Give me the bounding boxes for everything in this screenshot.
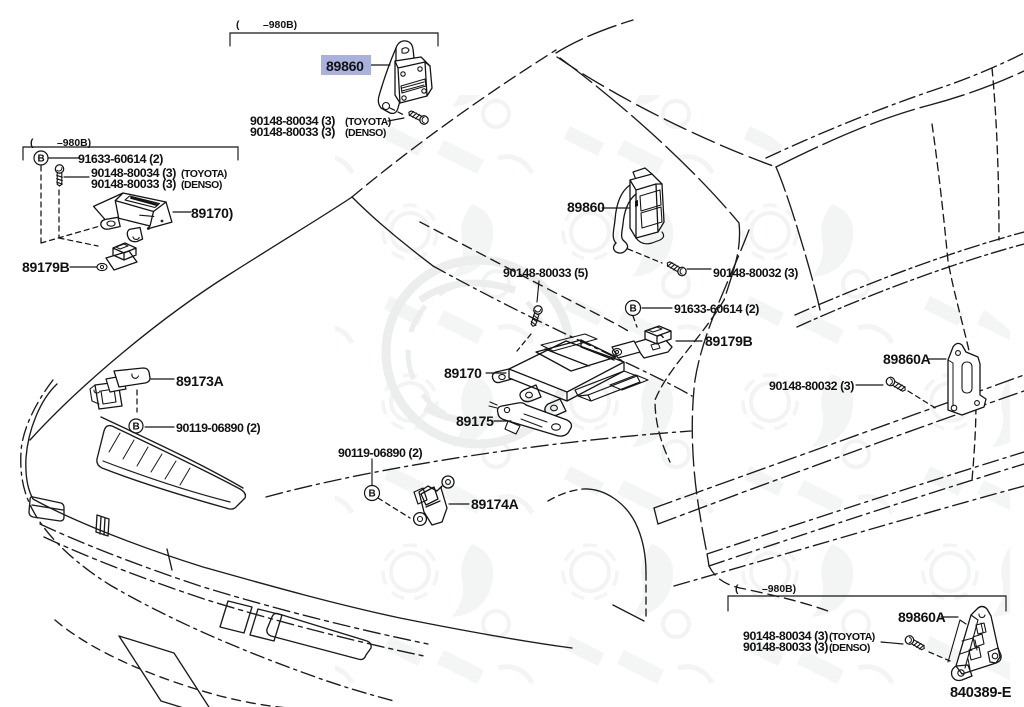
svg-text:(: ( xyxy=(30,138,34,149)
svg-text:(DENSO): (DENSO) xyxy=(181,179,222,191)
svg-text:89175: 89175 xyxy=(456,413,494,429)
svg-text:90148-80032 (3): 90148-80032 (3) xyxy=(713,266,798,280)
svg-text:90148-80033 (3): 90148-80033 (3) xyxy=(743,640,828,654)
svg-text:B: B xyxy=(133,422,140,433)
svg-text:B: B xyxy=(38,154,45,165)
svg-text:90148-80033 (3): 90148-80033 (3) xyxy=(91,177,176,191)
svg-text:–980B): –980B) xyxy=(57,138,91,149)
svg-text:89179B: 89179B xyxy=(22,259,70,275)
svg-text:B: B xyxy=(630,304,637,315)
svg-text:91633-60614 (2): 91633-60614 (2) xyxy=(674,302,759,316)
svg-text:89860: 89860 xyxy=(326,58,364,74)
svg-text:90119-06890 (2): 90119-06890 (2) xyxy=(176,421,261,435)
svg-text:89860A: 89860A xyxy=(898,609,946,625)
svg-text:89860: 89860 xyxy=(567,199,605,215)
svg-text:90148-80033 (3): 90148-80033 (3) xyxy=(250,125,335,139)
svg-text:90148-80033 (5): 90148-80033 (5) xyxy=(503,266,588,280)
svg-text:90148-80032 (3): 90148-80032 (3) xyxy=(769,379,854,393)
svg-text:89179B: 89179B xyxy=(705,333,753,349)
svg-text:89174A: 89174A xyxy=(471,496,519,512)
svg-text:89170): 89170) xyxy=(191,205,233,221)
svg-text:840389-E: 840389-E xyxy=(950,685,1012,701)
svg-text:(: ( xyxy=(735,584,739,595)
svg-text:–980B): –980B) xyxy=(762,584,796,595)
svg-text:89170: 89170 xyxy=(444,365,482,381)
svg-text:91633-60614 (2): 91633-60614 (2) xyxy=(78,152,163,166)
svg-text:–980B): –980B) xyxy=(263,20,297,31)
svg-text:(DENSO): (DENSO) xyxy=(345,127,386,139)
svg-text:(DENSO): (DENSO) xyxy=(829,642,870,654)
svg-text:B: B xyxy=(369,489,376,500)
svg-text:89860A: 89860A xyxy=(883,351,931,367)
svg-text:89173A: 89173A xyxy=(176,373,224,389)
svg-text:(: ( xyxy=(236,20,240,31)
svg-text:90119-06890 (2): 90119-06890 (2) xyxy=(338,446,423,460)
